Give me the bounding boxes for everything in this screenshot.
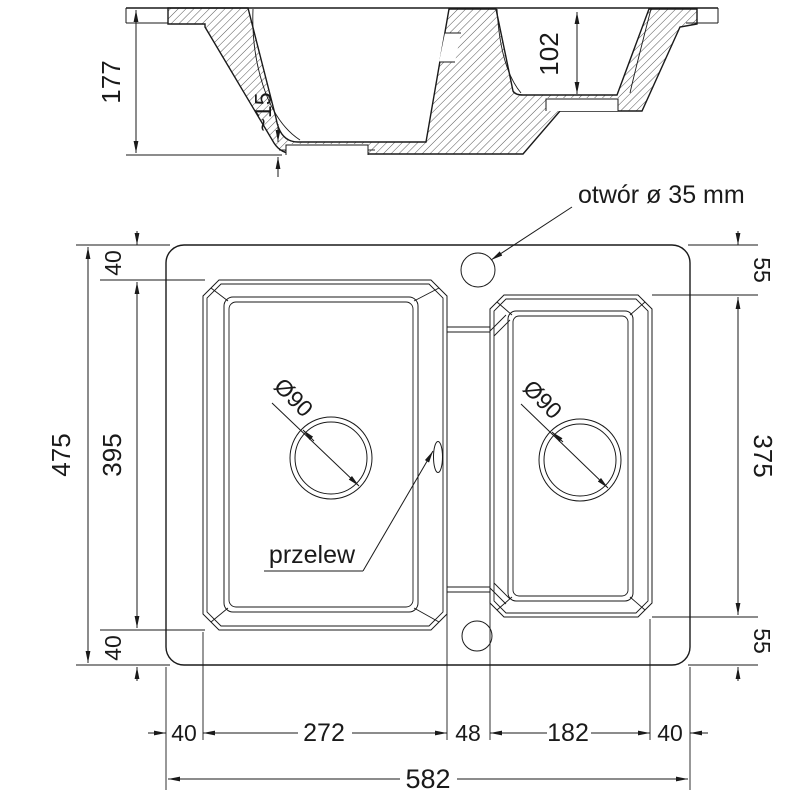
dim-label-55-bottom: 55: [749, 628, 775, 654]
drain-right-label: Ø90: [518, 375, 567, 424]
dim-label-182: 182: [547, 719, 589, 747]
dim-label-40-right: 40: [657, 720, 683, 746]
dim-small-bowl-depth-102: 102: [534, 12, 577, 94]
section-drain-recess-right: [546, 98, 618, 111]
dim-label-177: 177: [96, 60, 126, 103]
dim-label-55-top: 55: [749, 257, 775, 283]
drain-left-dim: Ø90: [269, 373, 359, 486]
dim-label-40-bottom: 40: [100, 635, 126, 661]
dim-label-40-top: 40: [100, 250, 126, 276]
sink-drawing-svg: 177 ~15 102: [0, 0, 800, 800]
dim-label-582: 582: [405, 764, 450, 794]
overflow-callout: przelew: [264, 451, 433, 571]
drain-right-dim: Ø90: [518, 375, 608, 488]
left-bowl: [203, 280, 447, 630]
dim-label-475: 475: [46, 433, 76, 476]
dim-label-40-left: 40: [171, 720, 197, 746]
section-view: 177 ~15 102: [96, 8, 718, 177]
drain-right-outer: [539, 419, 621, 501]
overflow-label: przelew: [269, 541, 356, 569]
dim-label-15: ~15: [250, 92, 276, 131]
section-drain-recess-left: [279, 144, 375, 156]
overflow-slot: [434, 442, 443, 473]
dims-left: 475 40 395 40: [46, 231, 205, 681]
drain-left-outer: [290, 417, 372, 499]
section-left-endcap: [126, 8, 168, 23]
accessory-hole: [462, 621, 492, 651]
faucet-hole-label: otwór ø 35 mm: [578, 181, 745, 209]
dim-label-395: 395: [97, 433, 127, 476]
dim-label-272: 272: [303, 719, 345, 747]
technical-drawing-page: 177 ~15 102: [0, 0, 800, 800]
dim-label-102: 102: [534, 32, 564, 75]
sink-outer-outline: [166, 245, 690, 665]
section-body-hatched: [168, 8, 697, 154]
faucet-hole: [461, 253, 495, 287]
faucet-hole-callout: otwór ø 35 mm: [491, 181, 745, 260]
right-bowl: [490, 295, 652, 617]
divider-channel: [447, 327, 490, 592]
plan-view: otwór ø 35 mm przelew Ø90 Ø90: [46, 181, 778, 794]
dims-bottom: 40 272 48 182 40 582: [148, 594, 708, 794]
dim-label-48: 48: [455, 720, 481, 746]
dim-label-375: 375: [748, 434, 778, 477]
drain-left-label: Ø90: [269, 373, 318, 422]
dims-right: 55 375 55: [652, 231, 778, 681]
